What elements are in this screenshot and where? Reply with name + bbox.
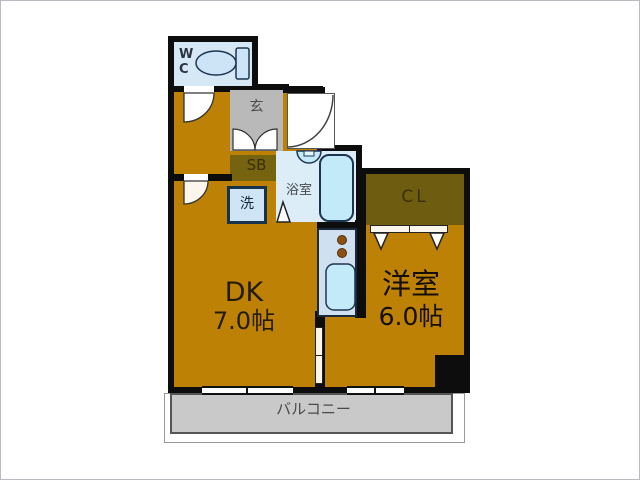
dk-name: DK [188,277,300,308]
kitchen-sink-icon [326,264,355,310]
toilet-tank-icon [236,48,249,79]
closet-label: CL [366,188,464,208]
bath-faucet-icon [304,151,314,156]
closet-door-icon [430,233,444,249]
western-room-size: 6.0帖 [354,303,468,332]
laundry-label: 洗 [227,196,267,212]
genkan-door-arc [233,129,255,150]
wc-door-arc [184,93,214,122]
stove-burner-icon [338,236,347,245]
dk-size: 7.0帖 [188,308,300,336]
western-room-label: 洋室 6.0帖 [354,268,468,332]
dk-door-arc [184,181,208,204]
bathroom-door-icon [277,202,290,222]
bathtub-icon [320,155,353,221]
entrance-door-arc [288,95,333,147]
stove-burner-icon [338,249,347,258]
floorplan-canvas: WC 玄 SB 洗 浴室 CL DK 7.0帖 洋室 6.0帖 バルコニー [0,0,640,480]
genkan-label: 玄 [230,99,283,115]
genkan-door-arc [255,129,277,150]
dk-label: DK 7.0帖 [188,277,300,336]
western-room-name: 洋室 [354,268,468,301]
bathroom-label: 浴室 [274,184,324,199]
shoebox-label: SB [230,157,283,174]
balcony-label: バルコニー [170,401,457,418]
wc-label: WC [179,47,195,77]
toilet-bowl-icon [196,51,236,75]
closet-door-icon [374,233,388,249]
